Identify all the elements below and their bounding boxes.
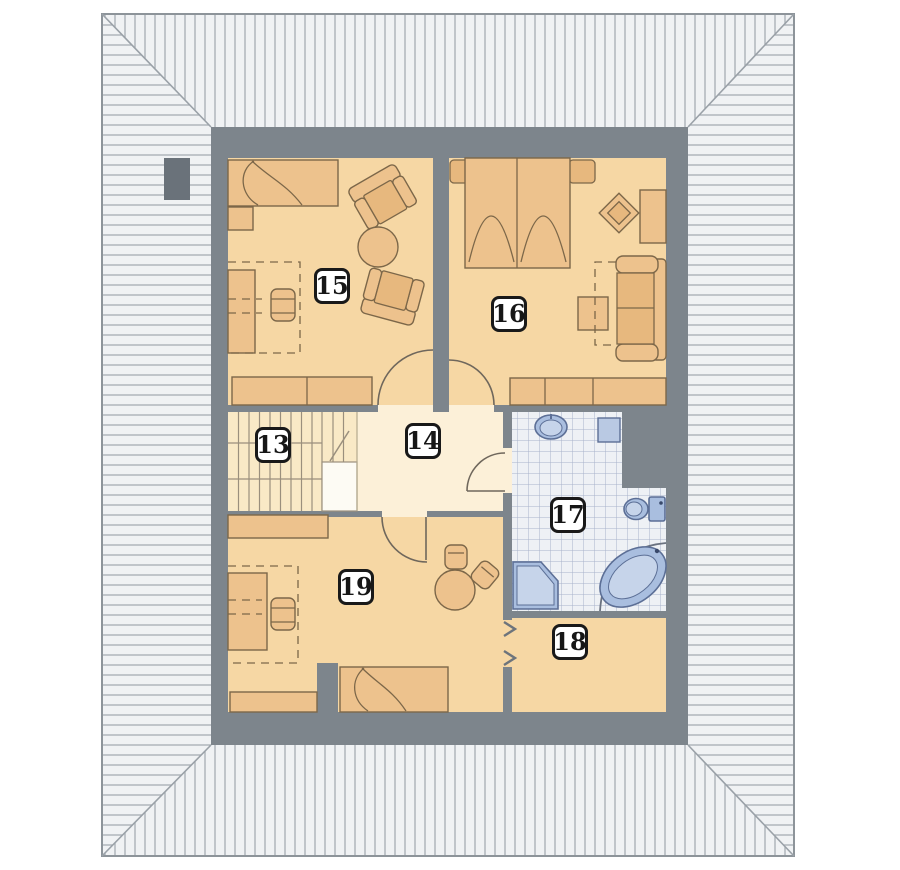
bathroom-duct-block [622, 412, 666, 488]
dresser-icon [510, 378, 666, 405]
chimney [164, 158, 190, 200]
door-opening-room15 [378, 405, 433, 412]
room-15-label: 15 [314, 268, 350, 304]
toilet-icon [624, 497, 665, 521]
sofa-icon [232, 377, 372, 405]
stair-landing [322, 462, 357, 511]
nightstand-icon [228, 207, 253, 230]
door-opening-bathroom [503, 448, 512, 493]
desk-icon [228, 573, 267, 650]
room-14-label: 14 [405, 423, 441, 459]
bed-icon [228, 160, 338, 206]
door-opening-room19 [382, 511, 427, 517]
room-19-wall-stub [317, 663, 338, 712]
dresser-icon [228, 515, 328, 538]
pillow-icon [569, 160, 595, 183]
desk-chair-icon [271, 598, 295, 630]
washbasin-icon [535, 414, 567, 439]
room-17-label: 17 [550, 497, 586, 533]
room-19-label: 19 [338, 569, 374, 605]
roof-slope-right [688, 14, 794, 856]
roof-slope-left [102, 14, 211, 856]
round-table-icon [358, 227, 398, 267]
round-table-icon [435, 570, 475, 610]
washing-machine-icon [598, 418, 620, 442]
door-opening-room16 [449, 405, 494, 412]
room-16-label: 16 [491, 296, 527, 332]
side-table-icon [578, 297, 608, 330]
room-18-floor [512, 618, 666, 712]
floor-plan: 13 14 15 16 17 18 19 [0, 0, 900, 870]
sofa-icon [616, 256, 666, 361]
bed-icon [340, 667, 448, 712]
wardrobe-icon [640, 190, 666, 243]
floor-plan-drawing [0, 0, 900, 870]
roof-slope-bottom [102, 745, 794, 856]
roof-slope-top [102, 14, 794, 127]
desk-chair-icon [271, 289, 295, 321]
room-13-label: 13 [255, 427, 291, 463]
cabinet-icon [230, 692, 317, 712]
stool-icon [445, 545, 467, 569]
room-18-label: 18 [552, 624, 588, 660]
desk-icon [228, 270, 255, 353]
